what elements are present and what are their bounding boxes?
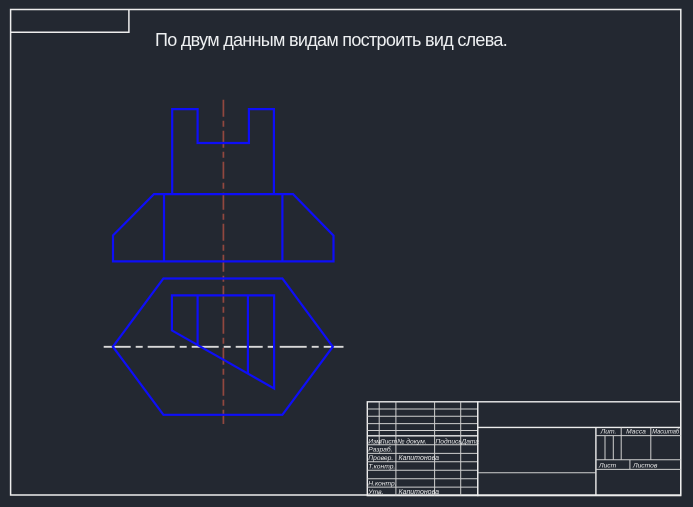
svg-text:Лист: Лист	[598, 462, 617, 469]
svg-text:Листов: Листов	[632, 462, 658, 469]
svg-text:Капитонова: Капитонова	[399, 455, 440, 462]
svg-text:Н.контр.: Н.контр.	[368, 480, 396, 487]
svg-text:Подпись: Подпись	[435, 437, 462, 445]
svg-text:Дата: Дата	[461, 438, 480, 445]
svg-text:Масса: Масса	[626, 429, 646, 436]
svg-text:№ докум.: № докум.	[397, 437, 427, 445]
svg-text:Т.контр.: Т.контр.	[368, 464, 395, 471]
svg-text:Разраб.: Разраб.	[368, 446, 392, 454]
svg-text:Провер.: Провер.	[368, 455, 393, 462]
svg-text:Утв.: Утв.	[367, 489, 383, 496]
svg-text:Лист: Лист	[379, 438, 398, 445]
svg-text:Масштаб: Масштаб	[652, 428, 679, 436]
svg-text:По двум данным видам построить: По двум данным видам построить вид слева…	[155, 30, 507, 50]
svg-text:Капитонова: Капитонова	[399, 489, 440, 496]
svg-text:Лит.: Лит.	[600, 429, 617, 436]
